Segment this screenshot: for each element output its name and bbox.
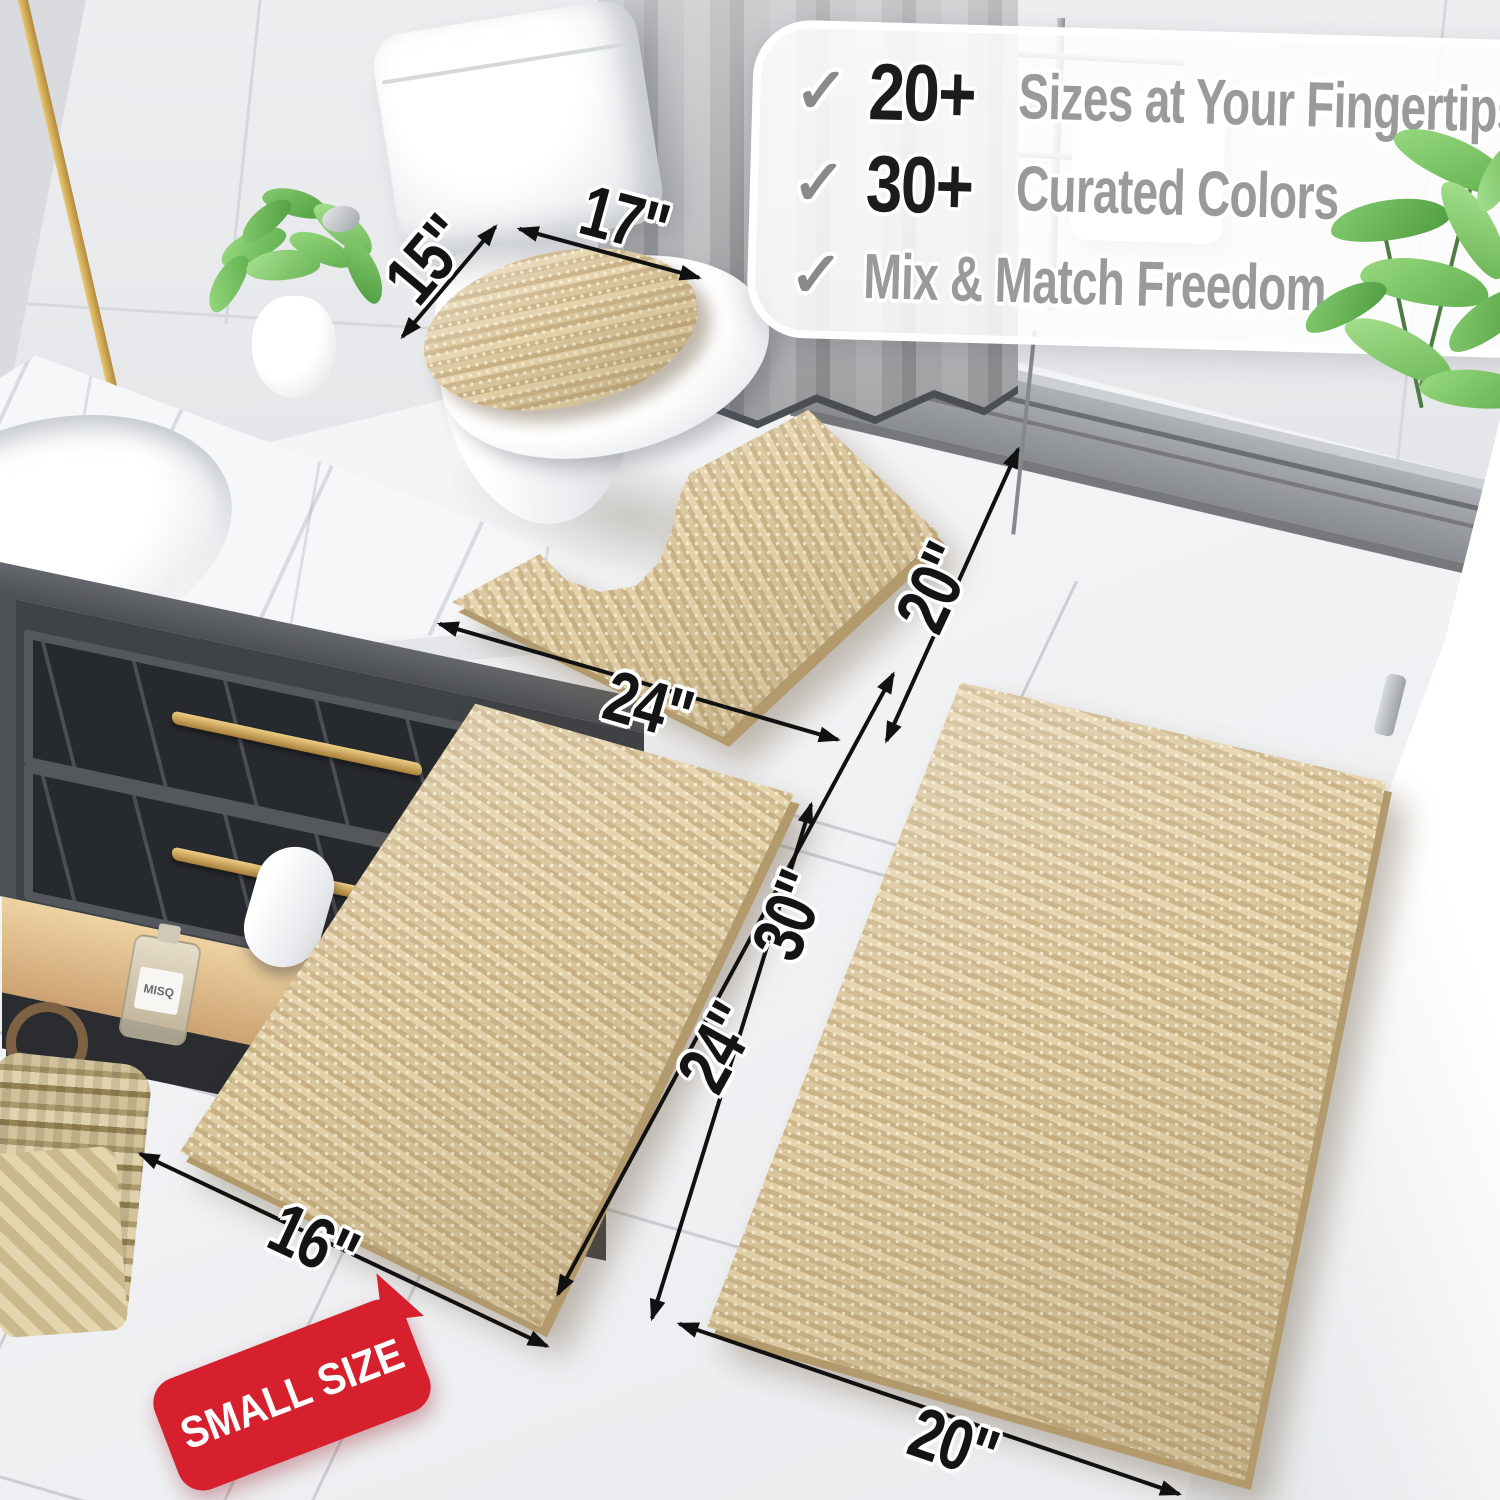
feature-label: Curated Colors — [1015, 151, 1340, 234]
feature-count: 30+ — [865, 138, 991, 233]
product-scene: MISQ 15" 17" 24" 20" 24" 30" 16" 20" — [0, 0, 1500, 1500]
large-bath-mat — [695, 670, 1400, 1495]
check-icon: ✓ — [794, 52, 870, 129]
plant-pot — [252, 296, 336, 398]
feature-banner: ✓ 20+ Sizes at Your Fingertips ✓ 30+ Cur… — [746, 19, 1500, 359]
large-mat-face — [695, 670, 1400, 1495]
tank-lid-seam — [382, 41, 632, 84]
feature-label: Mix & Match Freedom — [862, 239, 1326, 326]
vanity-stile — [0, 590, 16, 899]
check-icon: ✓ — [791, 144, 867, 221]
basket-towel — [0, 1146, 128, 1338]
feature-count: 20+ — [867, 46, 993, 141]
check-icon: ✓ — [788, 236, 864, 313]
